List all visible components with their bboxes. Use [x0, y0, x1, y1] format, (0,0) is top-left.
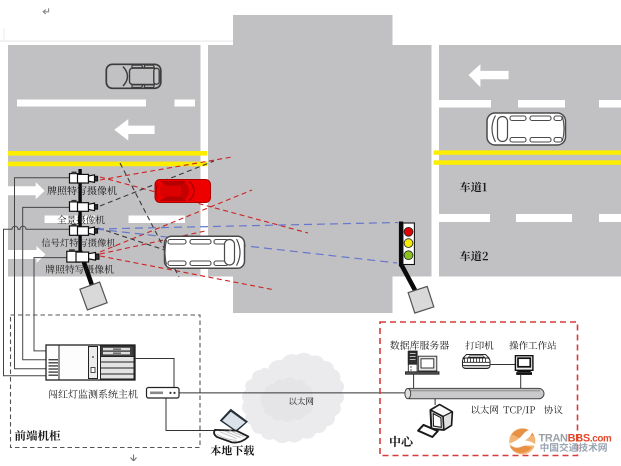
- svg-text:TRANBBS.com: TRANBBS.com: [539, 432, 612, 444]
